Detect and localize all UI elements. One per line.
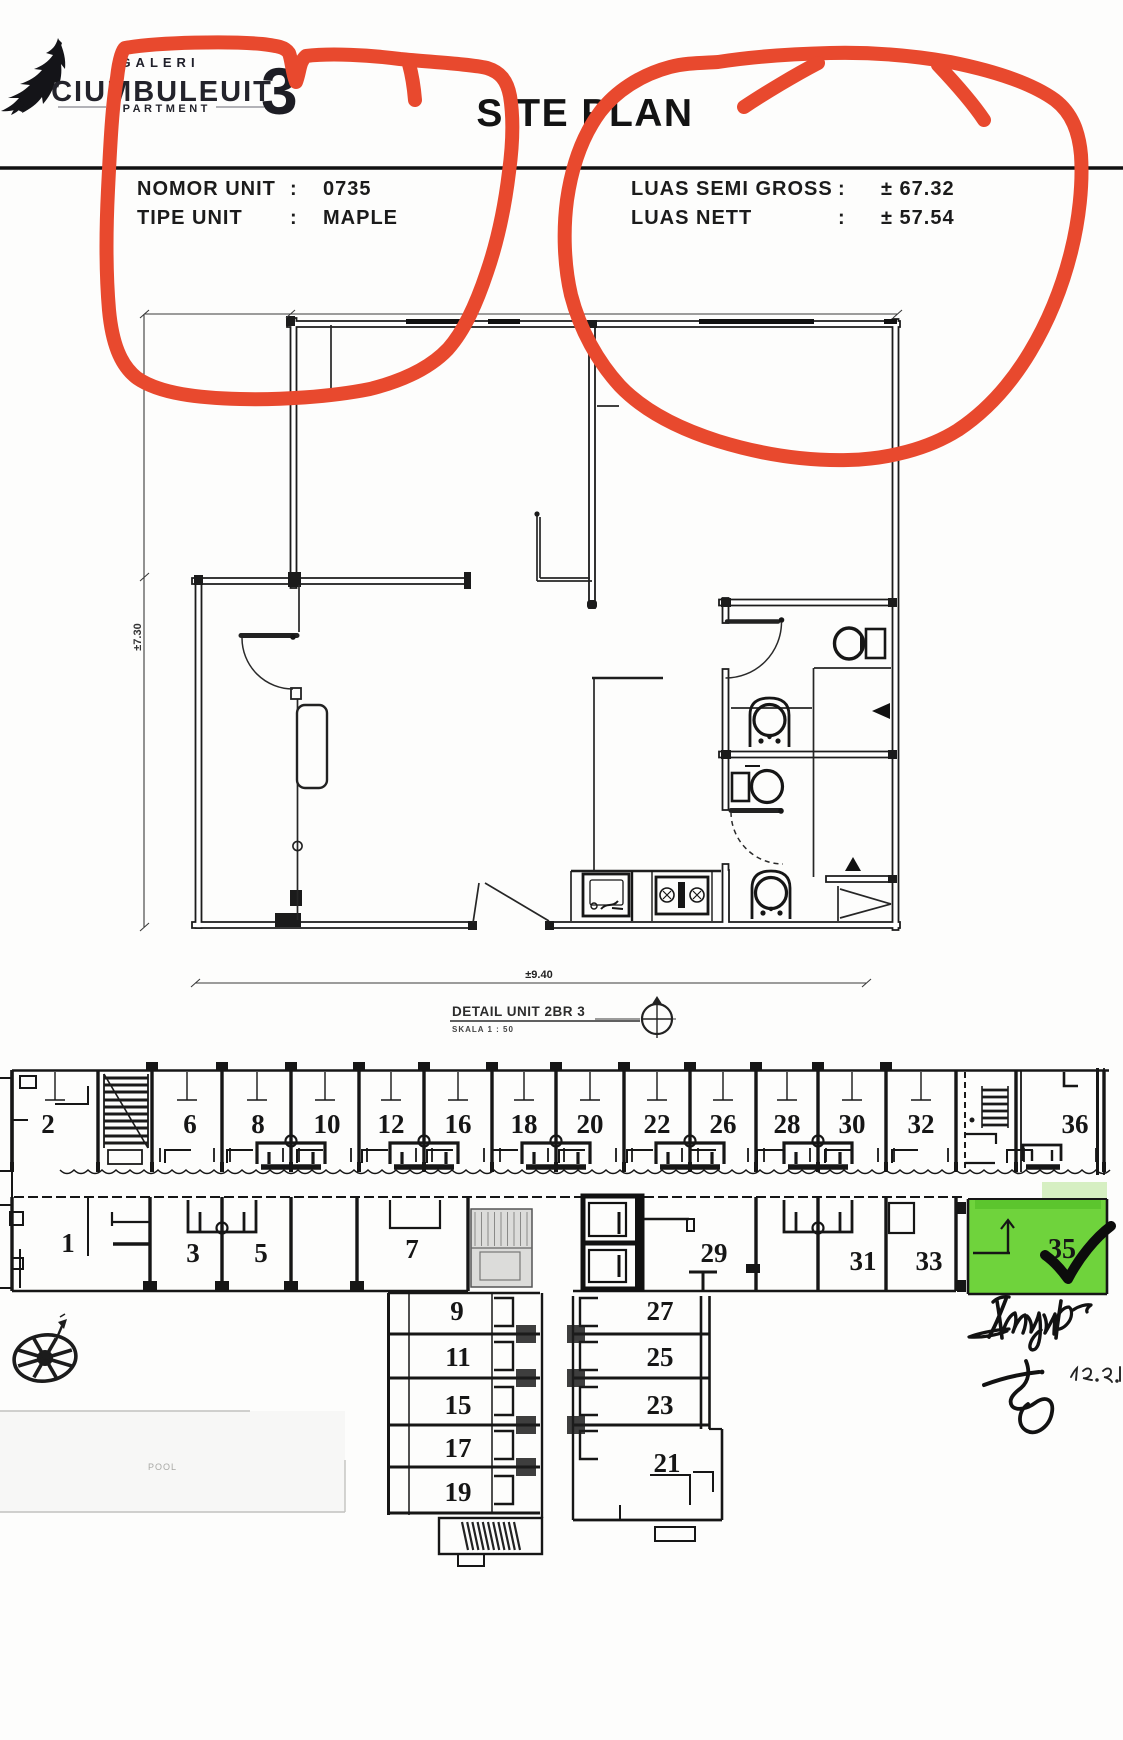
svg-text::: : (838, 207, 846, 229)
svg-text:23: 23 (647, 1390, 674, 1420)
svg-text::: : (290, 207, 298, 229)
svg-text:9: 9 (450, 1296, 464, 1326)
svg-text:25: 25 (647, 1342, 674, 1372)
svg-text:1: 1 (61, 1228, 75, 1258)
svg-text:32: 32 (908, 1109, 935, 1139)
svg-text::: : (290, 178, 298, 200)
svg-text:SKALA 1 : 50: SKALA 1 : 50 (452, 1025, 514, 1034)
svg-text:2: 2 (41, 1109, 55, 1139)
svg-text:MAPLE: MAPLE (323, 207, 398, 229)
svg-text:6: 6 (183, 1109, 197, 1139)
svg-text:±9.40: ±9.40 (525, 969, 552, 981)
svg-text:LUAS SEMI GROSS: LUAS SEMI GROSS (631, 178, 833, 200)
svg-text:10: 10 (314, 1109, 341, 1139)
svg-text:30: 30 (839, 1109, 866, 1139)
svg-text:15: 15 (445, 1390, 472, 1420)
svg-text::: : (838, 178, 846, 200)
svg-text:±7.30: ±7.30 (132, 623, 144, 650)
svg-text:GALERI: GALERI (120, 55, 199, 70)
svg-text:11: 11 (445, 1342, 471, 1372)
svg-text:7: 7 (405, 1234, 419, 1264)
svg-text:17: 17 (445, 1433, 472, 1463)
svg-text:8: 8 (251, 1109, 265, 1139)
svg-text:± 57.54: ± 57.54 (881, 207, 955, 229)
svg-text:21: 21 (654, 1448, 681, 1478)
svg-text:31: 31 (850, 1246, 877, 1276)
svg-text:0735: 0735 (323, 178, 372, 200)
svg-text:5: 5 (254, 1238, 268, 1268)
svg-text:36: 36 (1062, 1109, 1089, 1139)
svg-text:29: 29 (701, 1238, 728, 1268)
svg-text:POOL: POOL (148, 1462, 177, 1472)
svg-text:TIPE UNIT: TIPE UNIT (137, 207, 243, 229)
svg-text:18: 18 (511, 1109, 538, 1139)
svg-text:12: 12 (378, 1109, 405, 1139)
svg-text:NOMOR UNIT: NOMOR UNIT (137, 178, 276, 200)
svg-text:LUAS NETT: LUAS NETT (631, 207, 752, 229)
svg-text:APARTMENT: APARTMENT (111, 103, 211, 115)
svg-text:± 67.32: ± 67.32 (881, 178, 955, 200)
svg-text:22: 22 (644, 1109, 671, 1139)
svg-text:20: 20 (577, 1109, 604, 1139)
svg-text:19: 19 (445, 1477, 472, 1507)
svg-text:DETAIL UNIT 2BR 3: DETAIL UNIT 2BR 3 (452, 1004, 585, 1019)
svg-text:27: 27 (647, 1296, 674, 1326)
svg-text:33: 33 (916, 1246, 943, 1276)
svg-text:28: 28 (774, 1109, 801, 1139)
svg-text:3: 3 (186, 1238, 200, 1268)
svg-text:16: 16 (445, 1109, 472, 1139)
svg-text:26: 26 (710, 1109, 737, 1139)
